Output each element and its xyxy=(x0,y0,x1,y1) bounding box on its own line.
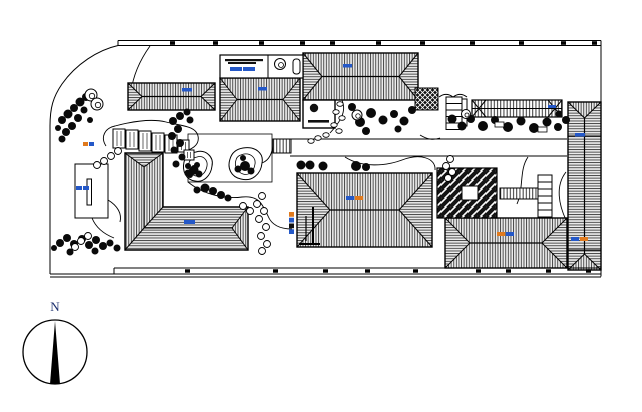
stair-step xyxy=(446,97,462,104)
tree-dark xyxy=(174,125,182,133)
tree-dark xyxy=(68,122,76,130)
tiny-annotation xyxy=(182,88,192,92)
shrub xyxy=(108,153,115,160)
tree-dark xyxy=(62,128,70,136)
tree-dark xyxy=(543,118,552,127)
tree-dark xyxy=(390,110,398,118)
roof-p xyxy=(445,218,567,268)
stepping-stone xyxy=(336,129,342,134)
stepping-stone xyxy=(315,136,321,141)
shrub xyxy=(85,233,92,240)
pond xyxy=(229,148,262,180)
tiny-annotation xyxy=(243,67,255,71)
tiny-annotation xyxy=(497,232,505,236)
tree-dark xyxy=(209,187,217,195)
tree-dark xyxy=(201,184,210,193)
boundary-tick xyxy=(170,41,175,45)
tiny-annotation xyxy=(506,232,514,236)
tree-dark xyxy=(319,162,328,171)
tree-dark xyxy=(529,123,539,133)
stair-step xyxy=(538,203,552,210)
pergola-beam-frame xyxy=(126,130,138,149)
vertical-annotation xyxy=(289,224,294,229)
tiny-annotation xyxy=(571,237,579,241)
room-pill-object xyxy=(293,59,300,74)
pavilion-bench xyxy=(308,120,329,123)
boundary-tick xyxy=(213,41,218,45)
boundary-tick xyxy=(259,41,264,45)
shrub xyxy=(447,156,454,163)
tree-dark xyxy=(92,248,99,255)
tree-dark xyxy=(173,161,180,168)
tree-dark xyxy=(169,117,177,125)
tree-dark xyxy=(194,187,201,194)
roof-a xyxy=(128,83,215,110)
pond-rockery xyxy=(196,171,203,178)
roof-b xyxy=(220,78,300,121)
tree-dark xyxy=(400,117,409,126)
tree-dark xyxy=(306,161,315,170)
shrub xyxy=(443,163,450,170)
pergola-beam-frame xyxy=(152,133,164,152)
tree-light xyxy=(91,98,103,110)
stone-bench xyxy=(538,127,547,132)
staircase xyxy=(538,175,552,217)
pavilion-outline xyxy=(303,100,335,128)
boundary-tick xyxy=(519,41,524,45)
stepping-stone xyxy=(337,102,343,107)
stair-step xyxy=(446,104,462,111)
shrub xyxy=(72,244,79,251)
tree-dark xyxy=(85,241,93,249)
boundary-tick xyxy=(376,41,381,45)
roof-h xyxy=(568,102,601,270)
shrub xyxy=(94,162,101,169)
tree-dark xyxy=(99,242,107,250)
shrub xyxy=(261,208,268,215)
tree-dark xyxy=(556,111,563,118)
compass xyxy=(23,320,87,384)
boundary-tick xyxy=(561,41,566,45)
tiny-annotation xyxy=(346,196,354,200)
tree-dark xyxy=(351,161,361,171)
boundary-tick xyxy=(586,269,591,272)
tiny-annotation xyxy=(89,142,94,146)
tree-dark xyxy=(55,125,61,131)
tree-dark xyxy=(179,154,186,161)
small-building xyxy=(75,164,108,218)
stepping-stone xyxy=(333,110,339,115)
tiny-annotation xyxy=(83,186,89,190)
top-room-outline xyxy=(220,55,303,78)
tiny-annotation xyxy=(83,142,88,146)
pond-rockery xyxy=(235,166,242,173)
pond-rockery xyxy=(240,155,246,161)
tree-dark xyxy=(379,116,388,125)
tree-dark xyxy=(107,240,114,247)
tree-dark xyxy=(297,161,306,170)
boundary-tick xyxy=(185,269,190,272)
tree-dark xyxy=(562,116,570,124)
roof-c xyxy=(303,53,418,100)
tree-dark xyxy=(458,122,467,131)
shrub xyxy=(259,248,266,255)
compass-needle xyxy=(50,321,60,384)
boundary-tick xyxy=(413,269,418,272)
tree-dark xyxy=(58,116,66,124)
tree-dark xyxy=(59,136,66,143)
pergola-beam xyxy=(184,150,194,160)
stepping-stone xyxy=(323,133,329,138)
boundary-tick xyxy=(365,269,370,272)
tiny-annotation xyxy=(355,196,363,200)
tree-dark xyxy=(362,163,370,171)
tree-dark xyxy=(184,109,191,116)
shrub xyxy=(258,233,265,240)
shrub xyxy=(256,216,263,223)
vertical-annotation xyxy=(289,218,294,223)
stair-step xyxy=(538,196,552,203)
pergola-beam-frame xyxy=(184,150,194,160)
tree-dark xyxy=(114,245,121,252)
stair-step xyxy=(538,175,552,182)
tree-dark xyxy=(63,234,71,242)
tree-dark xyxy=(70,104,78,112)
tree-light xyxy=(352,110,362,120)
garden-path xyxy=(108,200,121,222)
shrub xyxy=(247,208,254,215)
compass-north-label: N xyxy=(44,299,66,315)
tree-dark xyxy=(185,163,191,169)
pavilion xyxy=(303,100,335,128)
tree-canopy xyxy=(91,98,103,110)
tiny-annotation xyxy=(575,133,585,137)
tree-dark xyxy=(168,132,176,140)
pergola-beam xyxy=(113,129,125,148)
tree-dark xyxy=(191,165,197,171)
court-center-square xyxy=(462,186,478,200)
boundary-tick xyxy=(592,41,597,45)
tree-dark xyxy=(554,123,562,131)
tree-dark xyxy=(81,107,88,114)
room-furniture xyxy=(228,62,256,64)
tiny-annotation xyxy=(343,64,352,68)
top-room xyxy=(220,55,303,78)
tree-dark xyxy=(64,110,73,119)
pergola-beam-frame xyxy=(113,129,125,148)
tiny-annotation xyxy=(230,67,242,71)
shrub xyxy=(259,193,266,200)
tree-dark xyxy=(185,170,192,177)
site-plan-svg xyxy=(0,0,642,412)
stepping-stone xyxy=(331,123,337,128)
shrub xyxy=(254,201,261,208)
pavilion-table xyxy=(310,104,318,112)
vertical-annotation xyxy=(289,212,294,217)
tree-dark xyxy=(395,126,402,133)
long-pergola xyxy=(472,100,562,117)
tree-dark xyxy=(448,115,457,124)
vertical-annotation xyxy=(289,229,294,234)
pond-rockery xyxy=(248,168,255,175)
tree-dark xyxy=(217,191,225,199)
tree-dark xyxy=(176,139,184,147)
tree-dark xyxy=(87,117,93,123)
boundary-tick xyxy=(273,269,278,272)
shrub xyxy=(101,158,108,165)
site-plan xyxy=(23,41,601,385)
shrub xyxy=(264,241,271,248)
boundary-tick xyxy=(300,41,305,45)
main-road xyxy=(290,139,567,156)
stepping-stone xyxy=(339,116,345,121)
garden-path xyxy=(92,218,114,238)
stepping-stone xyxy=(308,139,314,144)
garden-path xyxy=(559,172,566,220)
tree-light xyxy=(275,59,286,70)
stair-step xyxy=(538,189,552,196)
tree-dark xyxy=(56,239,64,247)
pergola-beam xyxy=(139,131,151,151)
tree-canopy xyxy=(352,110,362,120)
tree-dark xyxy=(348,103,356,111)
stone-bench xyxy=(495,122,504,127)
crosshatch-pad xyxy=(415,88,438,110)
tree-canopy xyxy=(275,59,286,70)
boundary-tick xyxy=(323,269,328,272)
tree-dark xyxy=(408,106,416,114)
boundary-tick xyxy=(546,269,551,272)
tree-dark xyxy=(92,236,100,244)
tree-dark xyxy=(478,121,488,131)
striped-walkway xyxy=(500,188,540,199)
shrub xyxy=(445,175,452,182)
tiny-annotation xyxy=(184,220,195,224)
pergola-beam-frame xyxy=(139,131,151,151)
shrub xyxy=(240,203,247,210)
boundary-tick xyxy=(506,269,511,272)
shrub xyxy=(78,238,85,245)
room-furniture xyxy=(225,59,263,61)
pergola-beam xyxy=(152,133,164,152)
tree-light xyxy=(462,110,471,119)
tree-dark xyxy=(51,245,57,251)
stair-step xyxy=(538,210,552,217)
boundary-tick xyxy=(476,269,481,272)
pergola-beam xyxy=(126,130,138,149)
tree-dark xyxy=(503,122,513,132)
site-plan-page: N xyxy=(0,0,642,412)
tiny-annotation xyxy=(76,186,82,190)
tree-dark xyxy=(366,108,376,118)
shrub xyxy=(115,148,122,155)
tiny-annotation xyxy=(580,237,588,241)
tree-dark xyxy=(225,195,232,202)
bridge xyxy=(273,139,291,153)
tree-dark xyxy=(187,117,194,124)
tiny-annotation xyxy=(548,105,556,108)
tree-dark xyxy=(176,112,184,120)
tree-dark xyxy=(517,117,526,126)
stair-step xyxy=(538,182,552,189)
tree-dark xyxy=(171,147,178,154)
roof-n xyxy=(297,173,432,247)
small-building-slot xyxy=(87,179,92,205)
tiny-annotation xyxy=(258,87,267,91)
tree-dark xyxy=(362,127,370,135)
boundary-tick xyxy=(470,41,475,45)
boundary-tick xyxy=(420,41,425,45)
shrub xyxy=(263,224,270,231)
boundary-tick xyxy=(330,41,335,45)
tree-dark xyxy=(74,114,82,122)
